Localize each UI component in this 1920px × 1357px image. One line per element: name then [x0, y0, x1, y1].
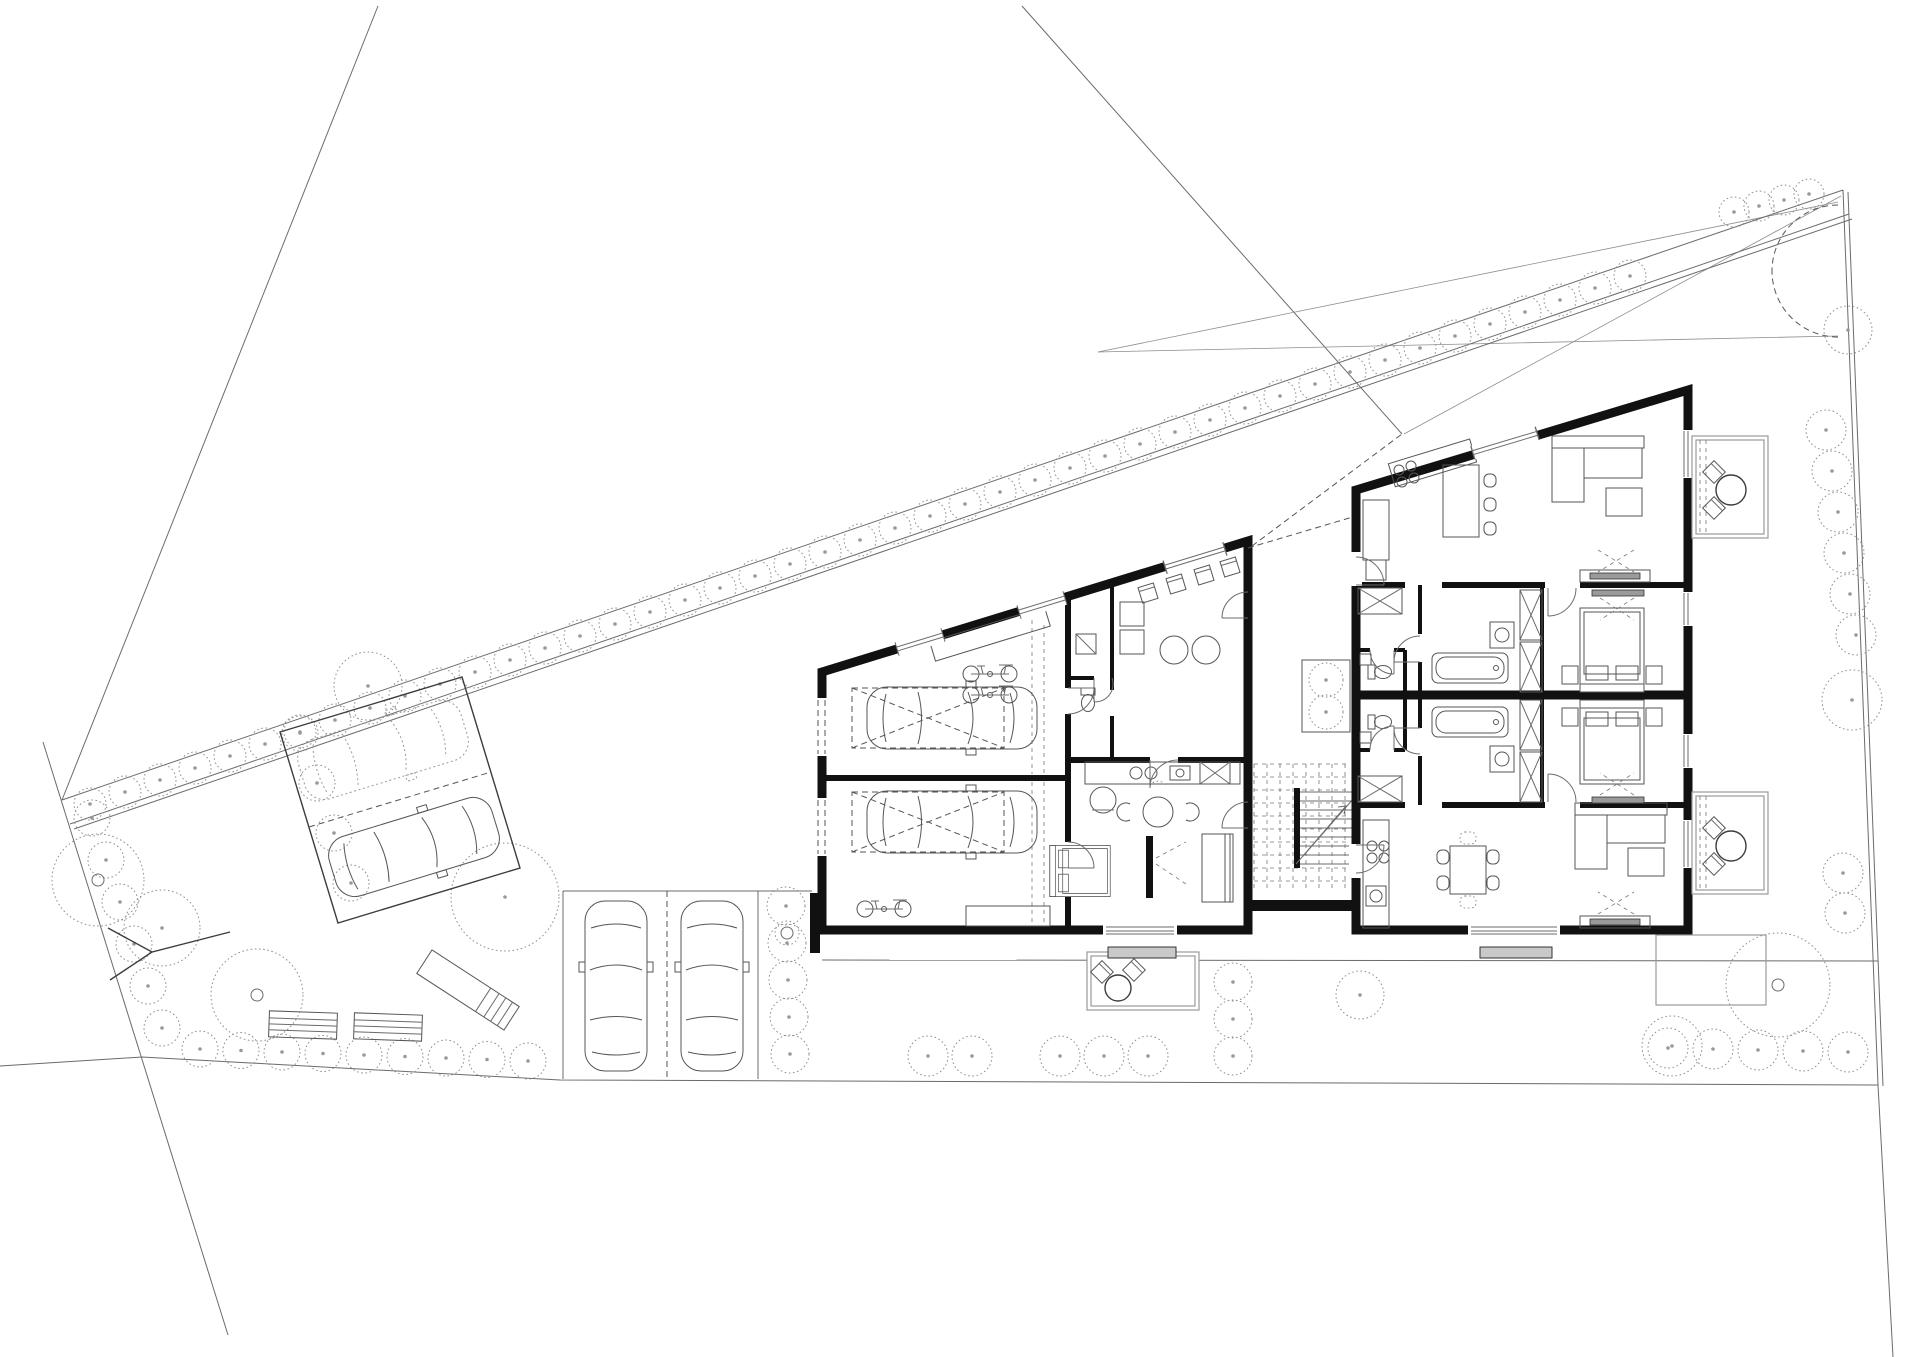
tree-trunk — [92, 874, 104, 886]
shrub-center — [1103, 454, 1107, 458]
shrub-center — [1102, 1054, 1106, 1058]
shrub-center — [526, 1059, 530, 1063]
shrub-center — [1842, 551, 1846, 555]
tv — [1590, 573, 1640, 579]
garden-bench — [269, 1011, 338, 1039]
shrub-center — [444, 1056, 448, 1060]
sight-line — [1098, 202, 1838, 352]
clothes-dryer — [110, 952, 152, 980]
shrub-center — [1711, 1047, 1715, 1051]
car-future — [291, 690, 475, 810]
shrub-center — [315, 781, 319, 785]
shrub-center — [1418, 346, 1422, 350]
shrub-center — [1146, 1054, 1150, 1058]
shrub-center — [1173, 430, 1177, 434]
shrub-center — [362, 1053, 366, 1057]
shrub-center — [926, 1054, 930, 1058]
shrub-center — [333, 718, 337, 722]
shrub-center — [788, 1052, 792, 1056]
site-fence — [1843, 190, 1878, 1085]
shrub-center — [88, 802, 92, 806]
shrub-center — [787, 1015, 791, 1019]
shrub-center — [1058, 1054, 1062, 1058]
shrub-center — [1383, 358, 1387, 362]
shrub-center — [970, 1054, 974, 1058]
shrub-center — [1231, 1054, 1235, 1058]
shrub-center — [1068, 466, 1072, 470]
tree-trunk — [781, 927, 793, 939]
shrub-center — [784, 904, 788, 908]
tree-center — [1670, 1044, 1674, 1048]
shrub-center — [1666, 1046, 1670, 1050]
shrub-center — [1801, 1049, 1805, 1053]
tree-center — [1358, 993, 1362, 997]
shrub-center — [648, 610, 652, 614]
dining-chair-optional — [1460, 896, 1476, 908]
tree — [211, 949, 303, 1041]
patio-outline — [1656, 935, 1766, 1005]
shrub-center — [473, 670, 477, 674]
shrub-center — [193, 766, 197, 770]
shrub-center — [1208, 418, 1212, 422]
double-bed — [1580, 700, 1644, 784]
stair-arrow — [1303, 806, 1346, 856]
shrub-center — [753, 574, 757, 578]
tree-center — [1324, 678, 1328, 682]
shrub-center — [198, 1047, 202, 1051]
boundary-line — [43, 742, 228, 1335]
shrub-center — [280, 1050, 284, 1054]
shrub-center — [123, 790, 127, 794]
sight-line — [1404, 196, 1841, 434]
terrace-outline — [1692, 792, 1768, 894]
shrub-center — [1628, 274, 1632, 278]
shrub-center — [1732, 210, 1736, 214]
bed — [1050, 845, 1110, 896]
boundary-line — [1022, 6, 1402, 434]
boundary-line — [0, 1057, 1878, 1085]
tree-center — [1850, 698, 1854, 702]
shrub-center — [368, 706, 372, 710]
shrub-center — [298, 731, 302, 735]
path-edge — [822, 960, 1878, 961]
shrub-center — [1807, 192, 1811, 196]
shrub-center — [332, 831, 336, 835]
canopy-edge — [1248, 516, 1356, 548]
tree-center — [503, 895, 507, 899]
tree — [52, 834, 144, 926]
shrub-center — [1348, 370, 1352, 374]
shrub-center — [578, 634, 582, 638]
shrub-center — [1278, 394, 1282, 398]
shrub-center — [1033, 478, 1037, 482]
shrub-center — [1453, 334, 1457, 338]
stair-wall — [1294, 788, 1300, 868]
shrub-center — [893, 526, 897, 530]
tree-trunk — [251, 989, 263, 1001]
shrub-center — [1757, 204, 1761, 208]
garage-door-opening — [815, 798, 828, 856]
shrub-center — [823, 550, 827, 554]
site-fence — [1848, 192, 1883, 1086]
car — [675, 901, 749, 1071]
tree-center — [1324, 710, 1328, 714]
shrub-center — [104, 858, 108, 862]
exterior-wall — [822, 541, 1248, 930]
shrub-center — [1313, 382, 1317, 386]
window-bench — [1480, 947, 1552, 958]
shrub-center — [683, 598, 687, 602]
gate-swing — [1772, 271, 1838, 337]
boundary-line — [1878, 1085, 1893, 1357]
shrub-center — [1841, 871, 1845, 875]
garage-door-opening — [815, 698, 828, 756]
shrub-center — [1488, 322, 1492, 326]
shrub-center — [1558, 298, 1562, 302]
garden-furniture — [108, 928, 519, 1041]
breezeway-wall — [1252, 900, 1352, 911]
shrub-center — [160, 1026, 164, 1030]
parking-cars — [579, 901, 749, 1071]
sight-line — [1098, 336, 1838, 352]
shrub-center — [928, 514, 932, 518]
car — [579, 901, 653, 1071]
room-divider — [1146, 836, 1153, 898]
shrub-center — [349, 881, 353, 885]
plan-layers — [0, 6, 1893, 1357]
shrub-center — [785, 941, 789, 945]
tree-center — [1846, 328, 1850, 332]
shrub-center — [1138, 442, 1142, 446]
shrub-center — [508, 658, 512, 662]
shrub-center — [1854, 633, 1858, 637]
dining-chair-optional — [1460, 832, 1476, 844]
floor-plan-canvas — [0, 0, 1920, 1357]
shrub-center — [1593, 286, 1597, 290]
shrub-center — [1843, 911, 1847, 915]
shrub-center — [1243, 406, 1247, 410]
shrub-center — [146, 984, 150, 988]
shrub-center — [158, 778, 162, 782]
tree-trunk — [1772, 979, 1784, 991]
clothes-dryer — [108, 928, 230, 952]
shrub-center — [118, 900, 122, 904]
planter-box — [1302, 660, 1350, 732]
shrub-center — [1231, 980, 1235, 984]
boundary-line — [62, 6, 378, 800]
tv — [1590, 919, 1640, 925]
building-left-block — [815, 541, 1248, 937]
sun-lounger — [417, 950, 519, 1030]
shrub-center — [786, 978, 790, 982]
shrub-center — [263, 742, 267, 746]
shrub-center — [1523, 310, 1527, 314]
shrub-center — [403, 1055, 407, 1059]
shrub-center — [1846, 1050, 1850, 1054]
shrub-center — [1782, 198, 1786, 202]
shrub-center — [1824, 428, 1828, 432]
tree-center — [160, 926, 164, 930]
window-bench — [1108, 947, 1176, 958]
shrub-center — [858, 538, 862, 542]
carport — [280, 677, 520, 923]
shrub-center — [718, 586, 722, 590]
shrub-center — [321, 1052, 325, 1056]
shrub-center — [998, 490, 1002, 494]
double-bed — [1580, 608, 1644, 692]
shrub-center — [613, 622, 617, 626]
shrub-center — [963, 502, 967, 506]
floor-plan-page — [0, 0, 1920, 1357]
terrace-outline — [1692, 436, 1768, 538]
shrub-center — [228, 754, 232, 758]
shrub-center — [543, 646, 547, 650]
shrub-center — [239, 1049, 243, 1053]
tree — [1726, 933, 1830, 1037]
shrub-center — [1231, 1017, 1235, 1021]
shrub-center — [1830, 469, 1834, 473]
tv — [1592, 590, 1644, 596]
shrub-center — [1836, 510, 1840, 514]
shrub-center — [90, 816, 94, 820]
shrub-center — [1848, 592, 1852, 596]
tree-center — [366, 684, 370, 688]
tv — [1592, 797, 1644, 803]
shrub-center — [1756, 1048, 1760, 1052]
shrub-center — [485, 1058, 489, 1062]
shrub-center — [788, 562, 792, 566]
car — [322, 787, 506, 907]
